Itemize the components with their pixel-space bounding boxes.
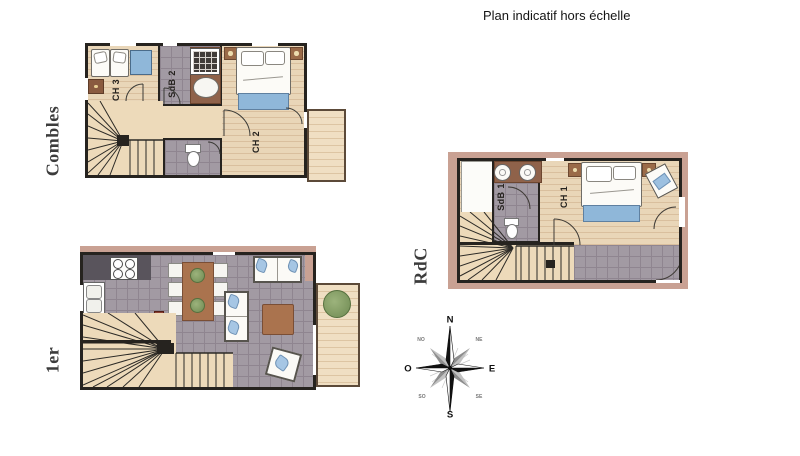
compass-ne: NE xyxy=(476,337,483,343)
floor-label-1er: 1er xyxy=(43,347,64,373)
window-opening xyxy=(110,43,136,46)
shower xyxy=(190,48,220,75)
compass-s: S xyxy=(447,410,453,421)
entry-door-opening xyxy=(656,280,680,283)
compass-n: N xyxy=(447,315,454,326)
window-opening xyxy=(213,252,235,255)
double-bed xyxy=(581,162,642,207)
chair xyxy=(213,263,228,278)
compass-e: E xyxy=(489,364,495,375)
washbasin xyxy=(519,164,536,181)
compass-o: O xyxy=(404,364,411,375)
balcony-door-opening xyxy=(304,112,307,128)
room-label-sdb1: SdB 1 xyxy=(496,183,506,211)
floor-label-rdc: RdC xyxy=(411,247,432,285)
closet xyxy=(461,161,496,215)
plant xyxy=(190,268,205,283)
window-opening xyxy=(80,285,83,311)
staircase-rdc xyxy=(460,212,574,280)
room-label-ch3: CH 3 xyxy=(111,79,121,101)
single-bed xyxy=(91,49,110,77)
armchair xyxy=(265,346,302,382)
floor-plan-combles: CH 3 SdB 2 CH 2 xyxy=(85,43,307,178)
coffee-table xyxy=(262,304,294,335)
compass-no: NO xyxy=(417,337,425,343)
floor-plan-1er xyxy=(80,252,316,390)
nightstand xyxy=(290,47,303,60)
room-label-ch2: CH 2 xyxy=(251,131,261,153)
bed-blue-cover xyxy=(130,50,152,75)
compass-so: SO xyxy=(418,394,425,400)
chair xyxy=(168,282,183,297)
nightstand xyxy=(568,163,582,177)
sofa xyxy=(253,256,302,283)
floor-label-combles: Combles xyxy=(43,106,64,177)
window-opening xyxy=(252,43,278,46)
balcony-door-opening xyxy=(313,325,316,375)
bed-blanket xyxy=(238,93,289,110)
balcony-1er xyxy=(316,283,360,387)
bed-blanket xyxy=(583,205,640,222)
single-bed xyxy=(110,49,129,77)
chair xyxy=(168,263,183,278)
balcony-combles xyxy=(307,109,346,182)
plant xyxy=(190,298,205,313)
window-opening xyxy=(163,43,177,46)
compass-rose xyxy=(400,318,500,418)
washbasin xyxy=(494,164,511,181)
window-opening xyxy=(85,78,88,100)
staircase-combles xyxy=(88,101,163,175)
plant xyxy=(323,290,351,318)
room-label-sdb2: SdB 2 xyxy=(167,70,177,98)
window-opening xyxy=(679,197,685,227)
page-title: Plan indicatif hors échelle xyxy=(483,8,630,23)
compass-se: SE xyxy=(476,394,483,400)
double-bed xyxy=(236,47,291,95)
washbasin xyxy=(193,77,219,98)
staircase-1er xyxy=(83,313,233,387)
window-opening xyxy=(546,158,564,161)
kitchen-sink xyxy=(83,282,105,315)
wardrobe xyxy=(88,79,104,94)
wall-patch xyxy=(305,255,313,281)
floor-plan-rdc: SdB 1 CH 1 xyxy=(457,158,682,283)
hallway xyxy=(574,245,679,280)
stove xyxy=(110,257,138,280)
room-label-ch1: CH 1 xyxy=(559,186,569,208)
